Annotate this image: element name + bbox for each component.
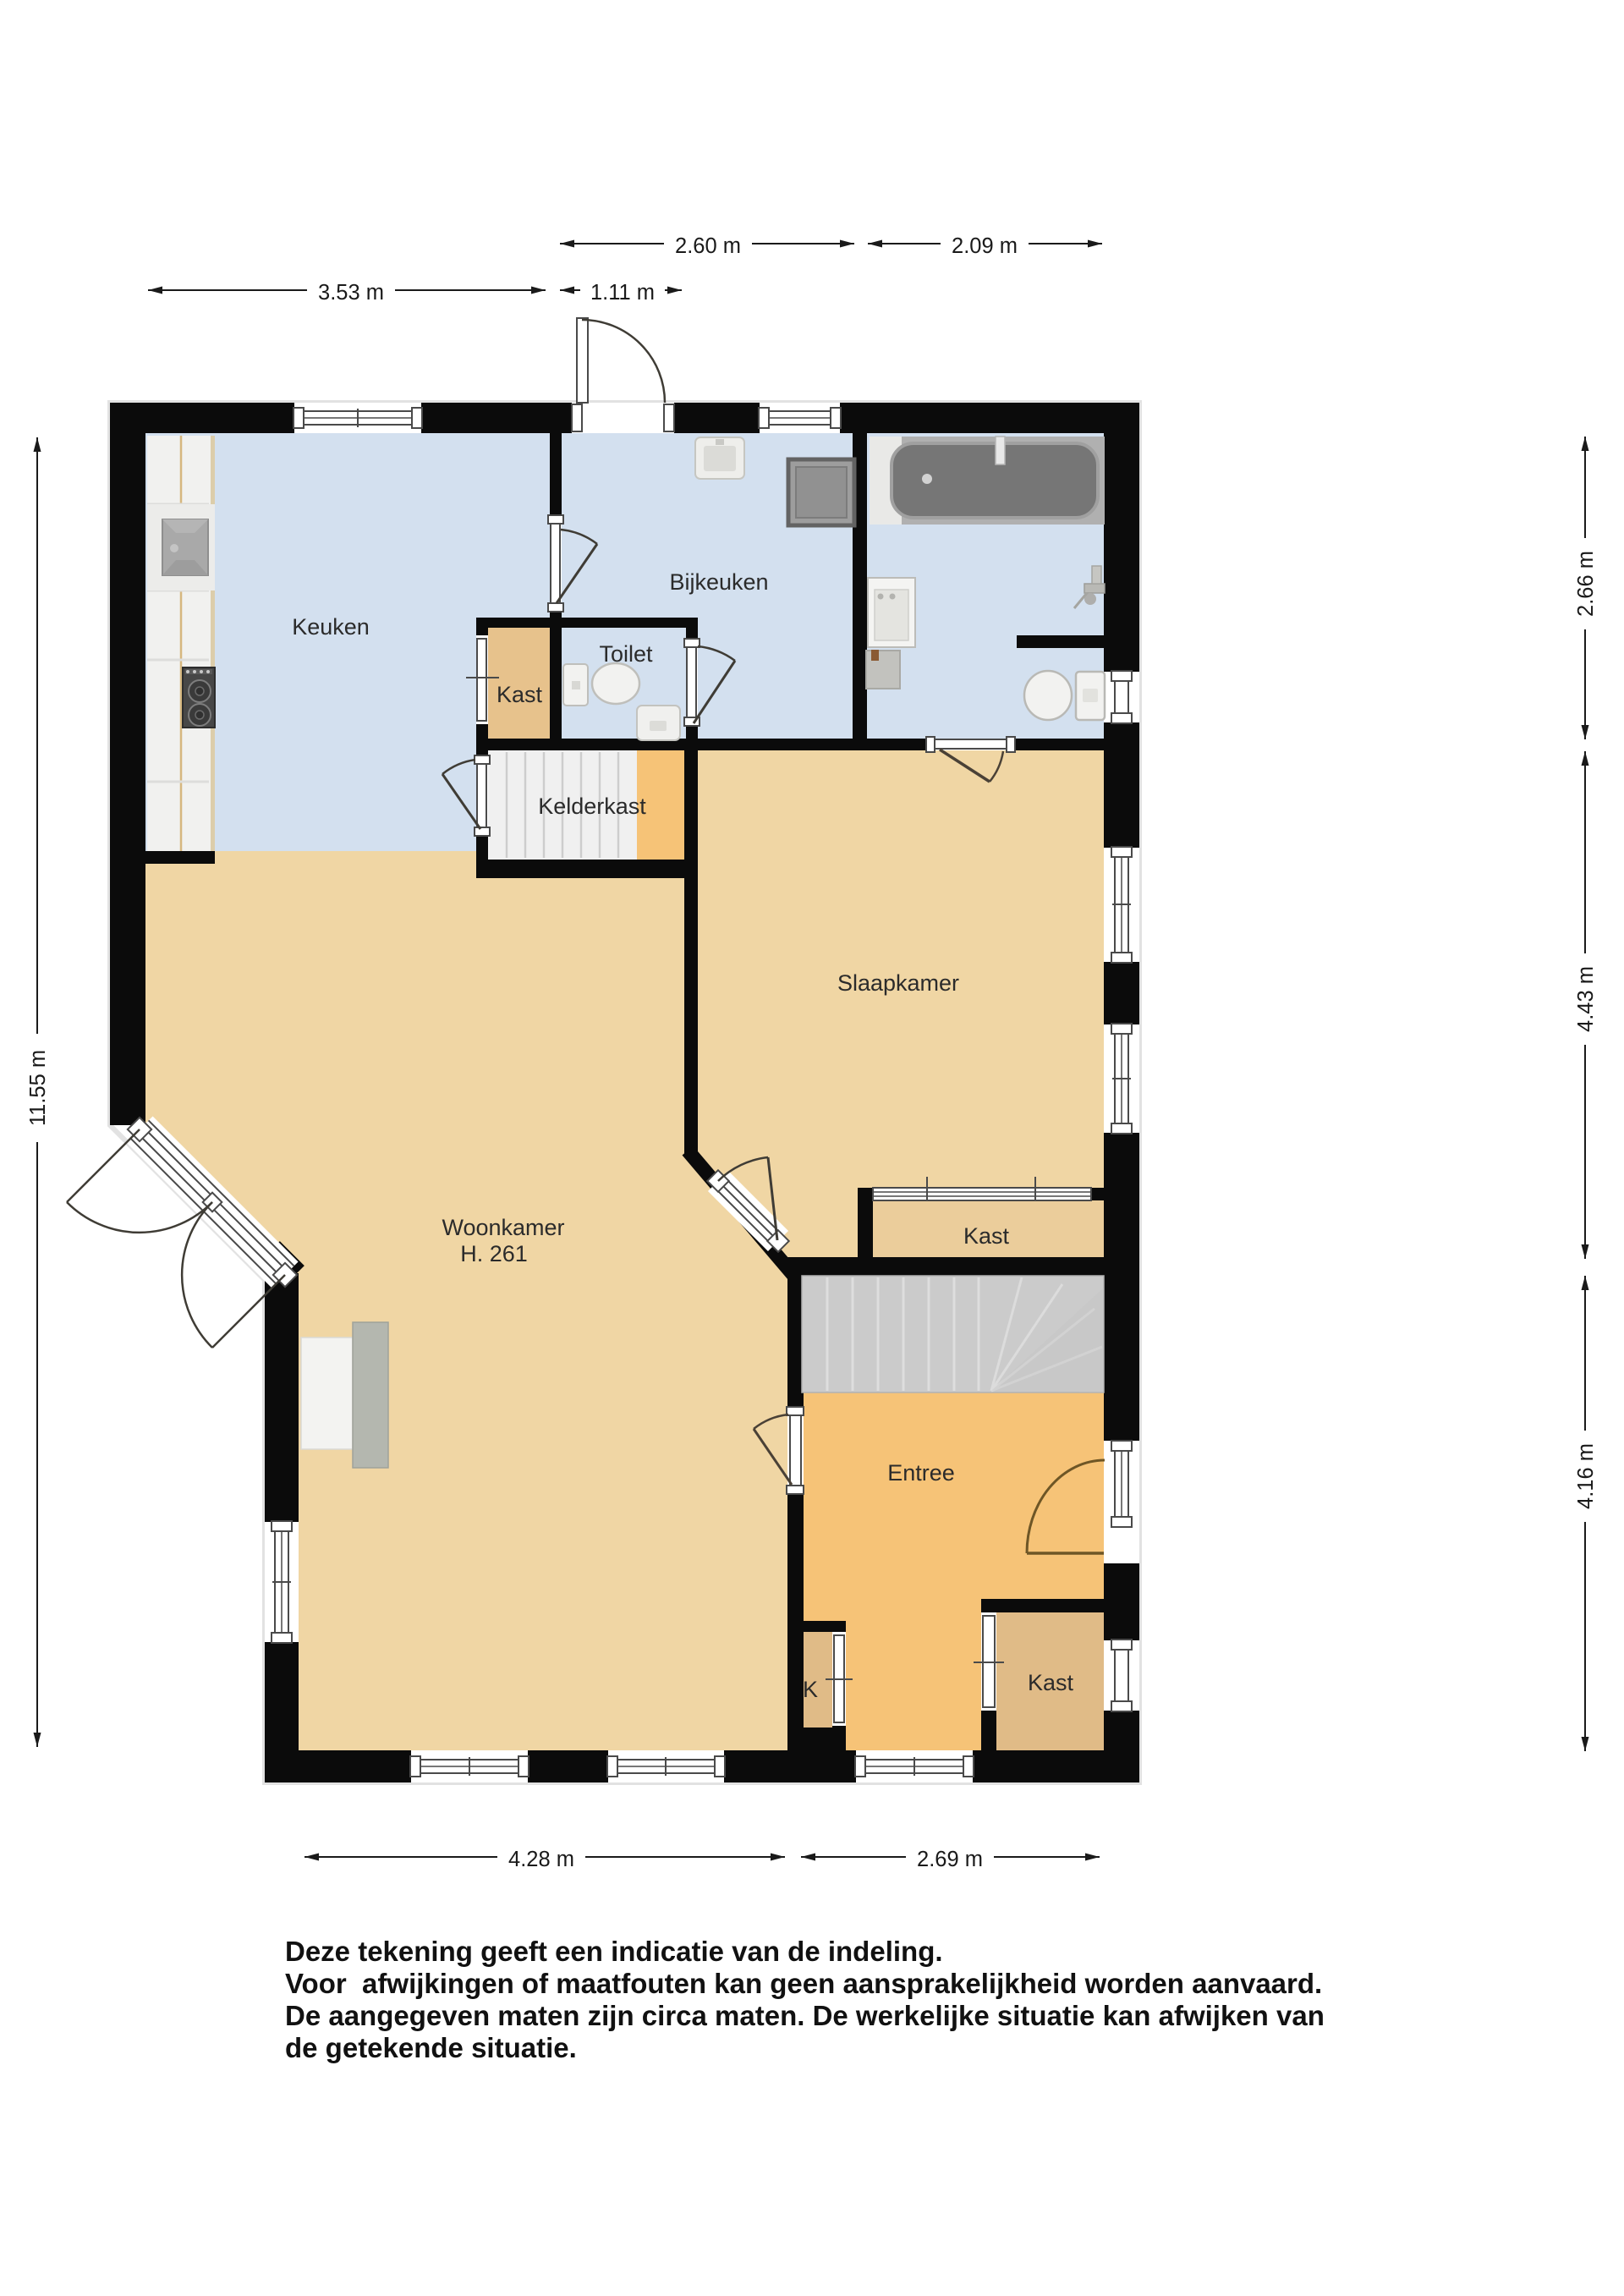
svg-text:Kast: Kast — [497, 682, 543, 707]
svg-text:Kast: Kast — [963, 1223, 1010, 1249]
svg-text:Woonkamer: Woonkamer — [442, 1215, 564, 1240]
svg-text:de getekende situatie.: de getekende situatie. — [285, 2032, 577, 2063]
svg-text:Voor afwijkingen of maatfoute: Voor afwijkingen of maatfouten kan geen … — [285, 1968, 1322, 1999]
svg-text:4.16 m: 4.16 m — [1574, 1443, 1598, 1509]
svg-text:Kast: Kast — [1028, 1670, 1074, 1695]
svg-text:Toilet: Toilet — [599, 641, 653, 667]
svg-text:3.53 m: 3.53 m — [318, 281, 384, 305]
svg-text:Keuken: Keuken — [292, 614, 370, 640]
svg-text:2.66 m: 2.66 m — [1574, 551, 1598, 617]
svg-text:K: K — [803, 1677, 818, 1702]
svg-text:Bijkeuken: Bijkeuken — [669, 569, 768, 595]
svg-text:Kelderkast: Kelderkast — [538, 794, 646, 819]
svg-text:De aangegeven maten zijn circa: De aangegeven maten zijn circa maten. De… — [285, 2000, 1325, 2031]
svg-text:4.28 m: 4.28 m — [508, 1848, 574, 1871]
svg-text:2.09 m: 2.09 m — [952, 234, 1018, 258]
svg-text:1.11 m: 1.11 m — [590, 281, 655, 305]
svg-text:Slaapkamer: Slaapkamer — [837, 970, 959, 996]
svg-text:Deze tekening geeft een indica: Deze tekening geeft een indicatie van de… — [285, 1936, 943, 1967]
svg-text:H. 261: H. 261 — [460, 1241, 528, 1266]
svg-text:Entree: Entree — [887, 1460, 955, 1486]
svg-text:11.55 m: 11.55 m — [26, 1050, 50, 1126]
svg-text:2.69 m: 2.69 m — [917, 1848, 983, 1871]
svg-text:2.60 m: 2.60 m — [675, 234, 741, 258]
svg-text:4.43 m: 4.43 m — [1574, 966, 1598, 1032]
